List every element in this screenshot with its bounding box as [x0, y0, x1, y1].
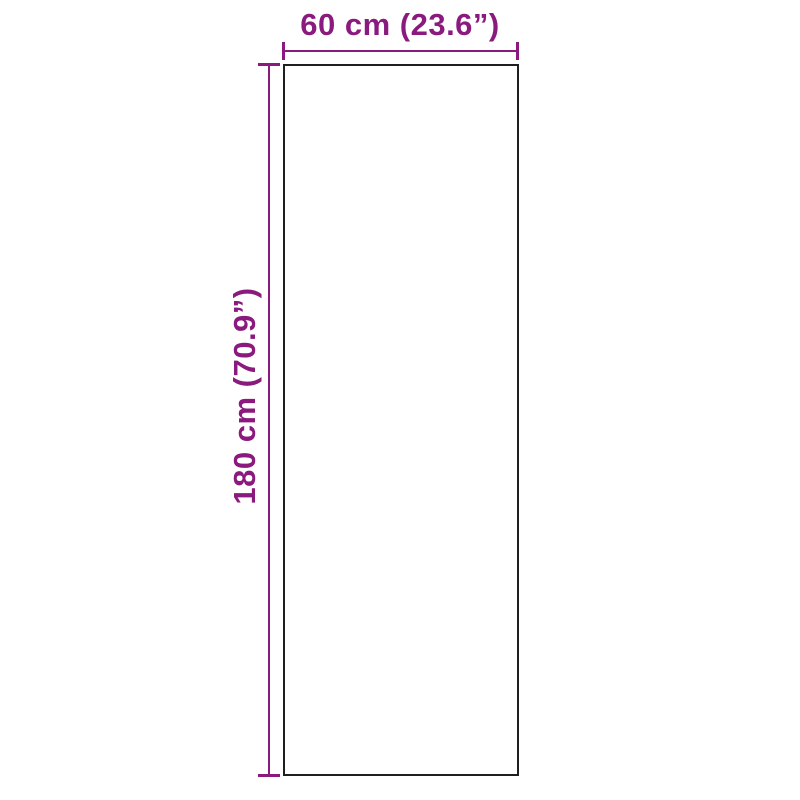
- dimension-diagram: 60 cm (23.6”) 180 cm (70.9”): [0, 0, 800, 800]
- height-dimension-line: [268, 64, 270, 776]
- width-dimension-tick-right: [516, 42, 519, 60]
- product-outline-rectangle: [283, 64, 519, 776]
- height-dimension-tick-bottom: [258, 774, 280, 777]
- width-dimension-line: [283, 50, 519, 52]
- height-dimension-label: 180 cm (70.9”): [227, 287, 263, 504]
- height-dimension-tick-top: [258, 63, 280, 66]
- width-dimension-label: 60 cm (23.6”): [0, 7, 800, 43]
- width-dimension-tick-left: [282, 42, 285, 60]
